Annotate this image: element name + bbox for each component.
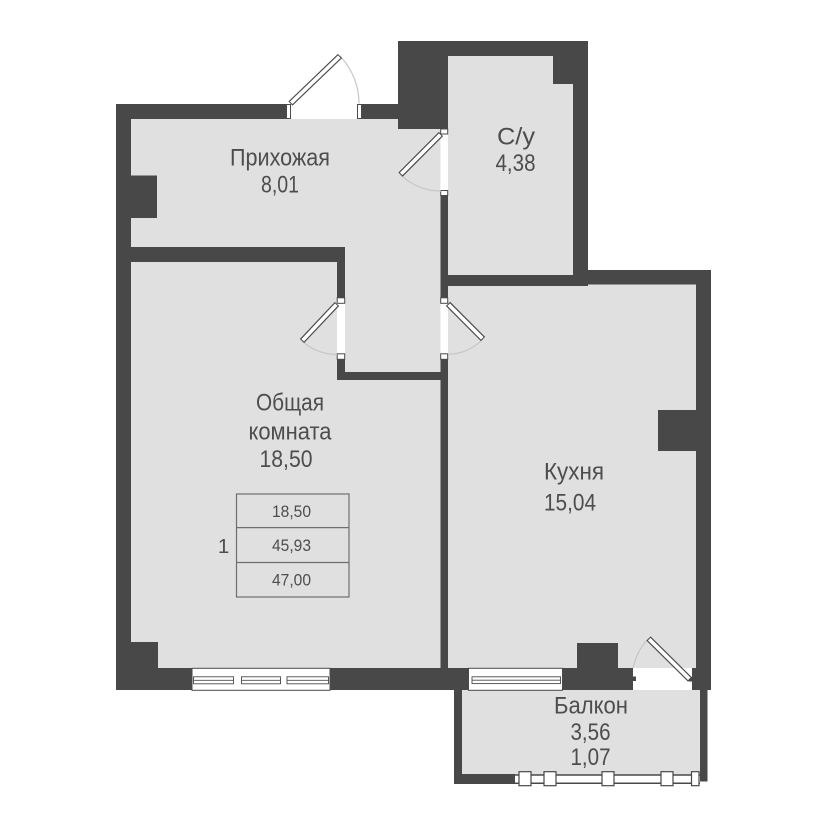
svg-text:45,93: 45,93 <box>272 536 311 555</box>
svg-text:1: 1 <box>218 535 229 558</box>
svg-text:8,01: 8,01 <box>261 172 299 199</box>
svg-text:4,38: 4,38 <box>496 150 536 177</box>
svg-text:Общая: Общая <box>256 390 324 417</box>
svg-text:47,00: 47,00 <box>272 571 311 590</box>
svg-text:1,07: 1,07 <box>571 744 611 771</box>
svg-text:Балкон: Балкон <box>554 693 628 720</box>
svg-text:18,50: 18,50 <box>260 446 313 473</box>
svg-text:3,56: 3,56 <box>571 719 611 746</box>
svg-text:Кухня: Кухня <box>544 459 604 486</box>
svg-text:Прихожая: Прихожая <box>230 145 330 172</box>
svg-text:15,04: 15,04 <box>544 490 596 517</box>
svg-text:С/у: С/у <box>497 124 535 151</box>
svg-text:18,50: 18,50 <box>272 502 311 521</box>
svg-text:комната: комната <box>249 419 333 446</box>
